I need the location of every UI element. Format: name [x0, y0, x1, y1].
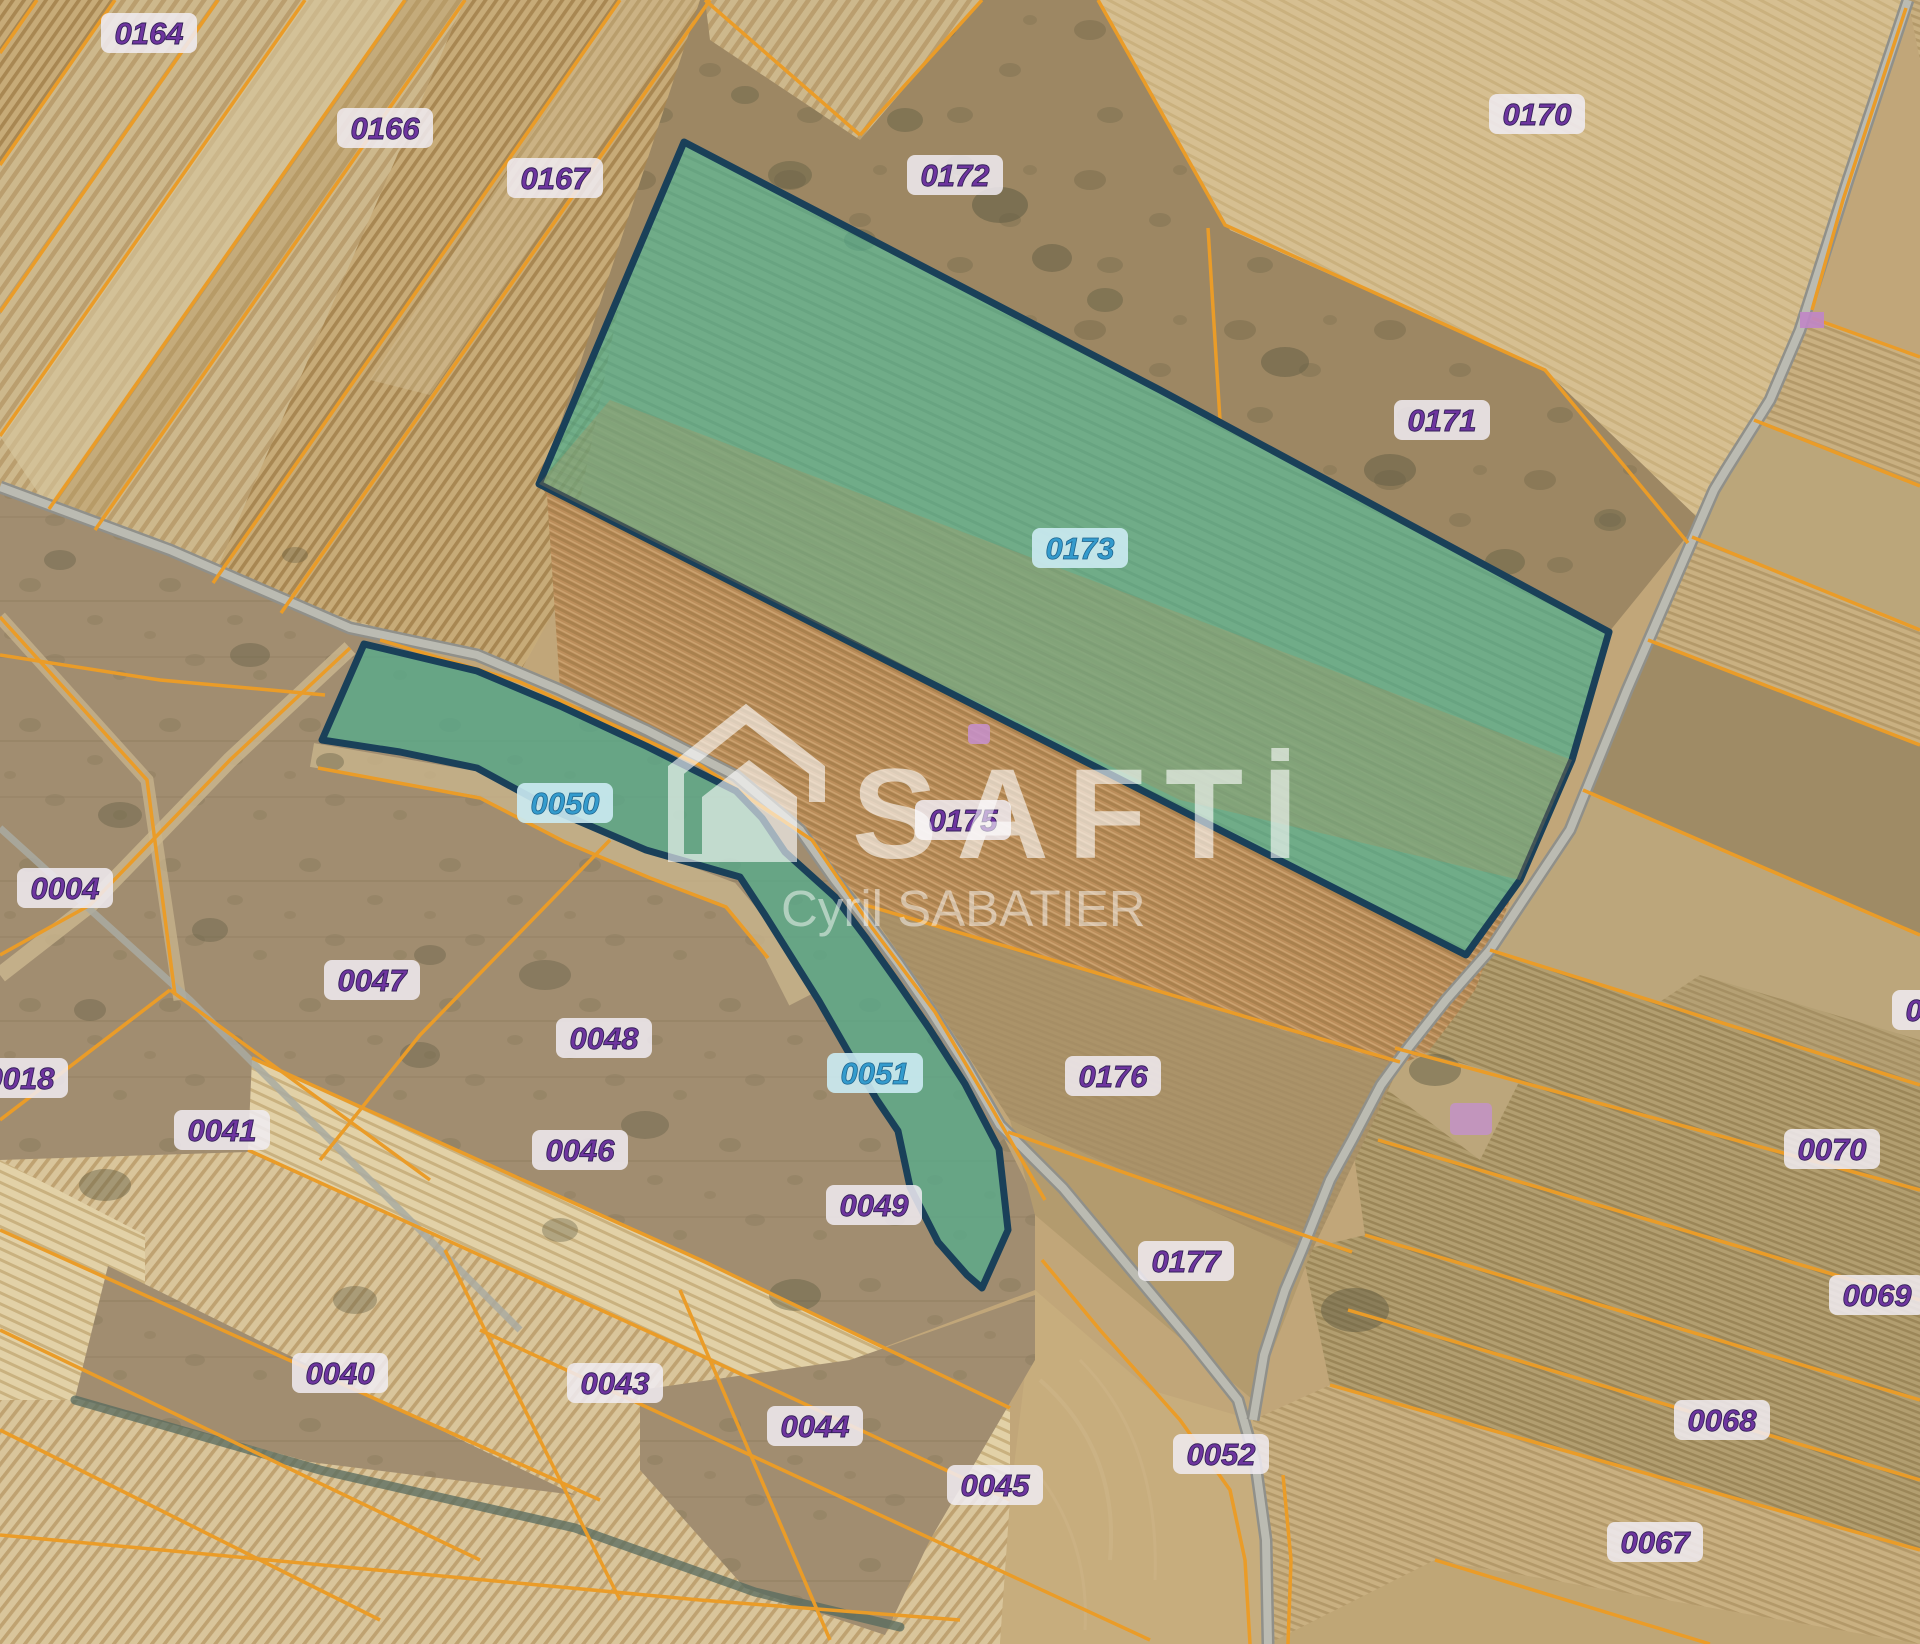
svg-text:SAFTİ: SAFTİ: [852, 743, 1317, 886]
